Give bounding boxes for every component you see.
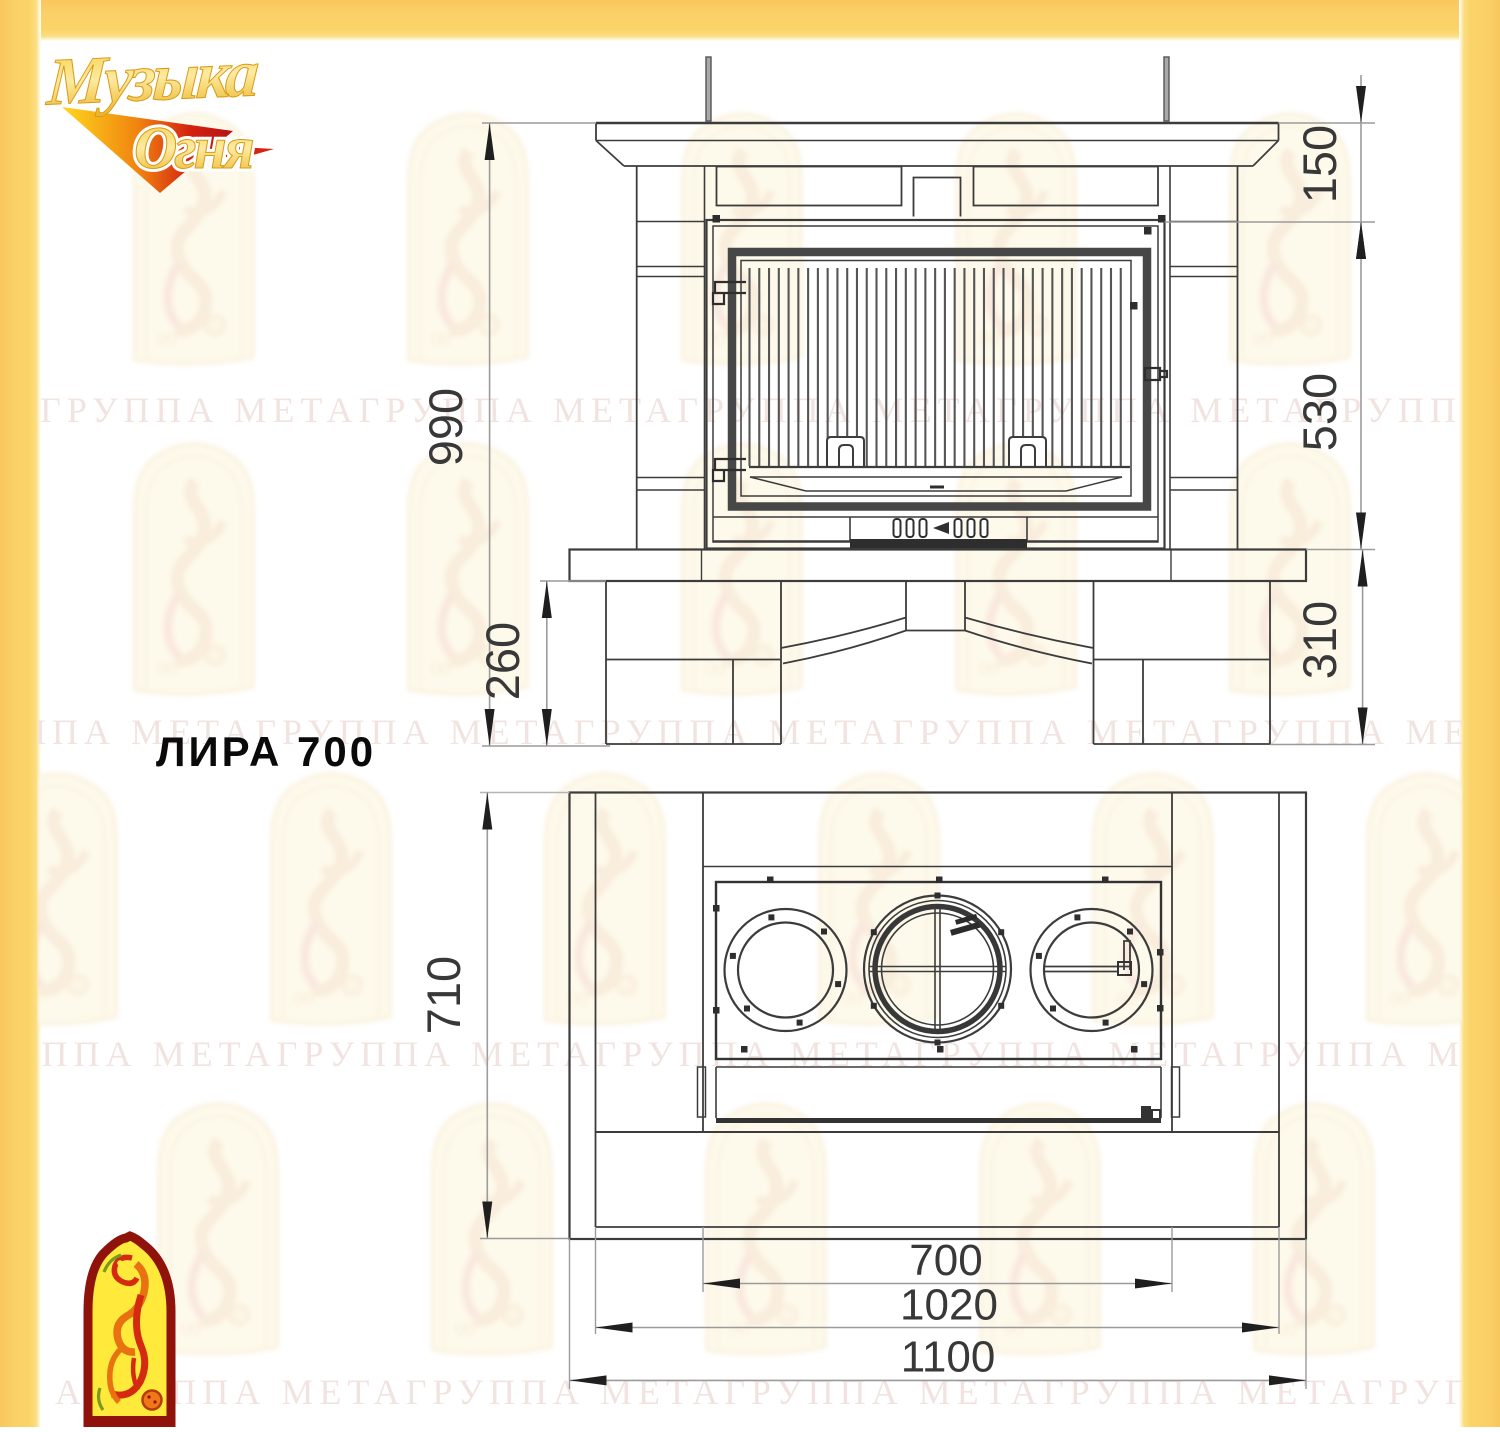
svg-text:150: 150 <box>1293 125 1346 203</box>
svg-text:710: 710 <box>417 956 470 1034</box>
svg-text:700: 700 <box>909 1236 982 1285</box>
svg-text:ЛИРА 700: ЛИРА 700 <box>156 728 376 775</box>
svg-text:260: 260 <box>476 622 529 700</box>
svg-text:1100: 1100 <box>901 1333 996 1382</box>
svg-text:1020: 1020 <box>900 1281 998 1330</box>
svg-text:530: 530 <box>1293 373 1346 451</box>
svg-text:990: 990 <box>419 388 472 466</box>
svg-text:УППА МЕТАГРУППА МЕТАГРУППА МЕТ: УППА МЕТАГРУППА МЕТАГРУППА МЕТАГРУППА МЕ… <box>10 1034 1500 1074</box>
svg-text:Огня: Огня <box>134 115 253 181</box>
svg-text:310: 310 <box>1293 601 1346 679</box>
svg-text:Музыка: Музыка <box>44 35 260 119</box>
